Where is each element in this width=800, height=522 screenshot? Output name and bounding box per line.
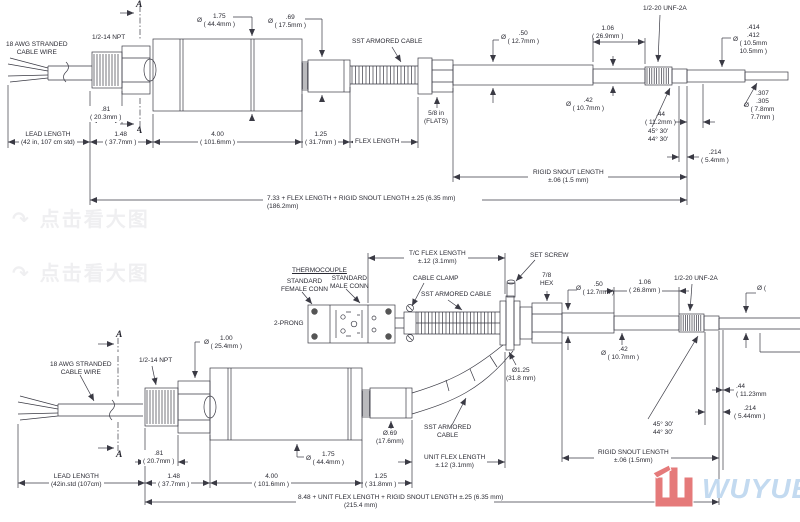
dim-dia-307-305: Ø.307.305( 7.8mm7.7mm ) bbox=[744, 90, 774, 123]
label-thermocouple: THERMOCOUPLE bbox=[292, 267, 347, 275]
label-cable-clamp: CABLE CLAMP bbox=[413, 275, 459, 283]
watermark-text: ↷ 点击看大图 bbox=[12, 257, 150, 286]
dim-unit-flex-length: UNIT FLEX LENGTH±.12 (3.1mm) bbox=[422, 454, 487, 470]
watermark-text: ↷ 点击看大图 bbox=[12, 203, 150, 232]
dim-dia-414-412: Ø.414.412( 10.5mm10.5mm ) bbox=[733, 24, 767, 57]
section-a-bottom-label-bottom: A bbox=[116, 450, 122, 460]
dim-dia-0-50-bottom: Ø.50( 12.7mm ) bbox=[576, 281, 614, 297]
label-sst-cable-top: SST ARMORED CABLE bbox=[352, 38, 422, 46]
dim-1-48-bottom: 1.48( 37.7mm ) bbox=[156, 473, 191, 489]
label-sst-cable-bottom-lower: SST ARMOREDCABLE bbox=[424, 424, 471, 440]
diameter-symbol: Ø bbox=[744, 102, 749, 110]
dim-0-81-top: .81( 20.3mm ) bbox=[88, 106, 123, 122]
dim-overall-top: 7.33 + FLEX LENGTH + RIGID SNOUT LENGTH … bbox=[267, 195, 455, 211]
diameter-symbol: Ø bbox=[566, 101, 571, 109]
dim-rigid-snout-top: RIGID SNOUT LENGTH±.06 (1.5 mm) bbox=[531, 169, 606, 185]
label-npt-top: 1/2-14 NPT bbox=[92, 34, 125, 42]
bottom-armored-cable bbox=[416, 312, 500, 334]
dim-angle-bottom: 45° 30'44° 30' bbox=[653, 421, 673, 437]
dim-lead-length-bottom: LEAD LENGTH(42in.std (107cm) bbox=[49, 473, 104, 489]
dim-dia-0-42-top: Ø.42( 10.7mm ) bbox=[566, 97, 604, 113]
dim-1-48-top: 1.48( 37.7mm ) bbox=[103, 131, 138, 147]
top-npt-fitting bbox=[92, 46, 156, 94]
dim-0-44-bottom: .44( 11.23mm bbox=[736, 383, 767, 399]
label-set-screw: SET SCREW bbox=[530, 252, 569, 260]
watermark-arrow-icon: ↷ bbox=[12, 207, 31, 231]
cable-clamp bbox=[404, 305, 416, 342]
watermark-arrow-icon: ↷ bbox=[12, 261, 31, 285]
label-awg-wire-bottom: 18 AWG STRANDEDCABLE WIRE bbox=[50, 361, 112, 377]
thermocouple-connector bbox=[308, 305, 404, 343]
wuyue-logo-text: WUYUE bbox=[702, 473, 800, 505]
label-unf-thread-top: 1/2-20 UNF-2A bbox=[643, 5, 687, 13]
diameter-symbol: Ø bbox=[501, 34, 506, 42]
dim-dia-0-50-top: Ø.50( 12.7mm ) bbox=[501, 30, 539, 46]
dim-dia-1-25: Ø1.25(31.8 mm) bbox=[506, 367, 536, 383]
diameter-symbol: Ø bbox=[733, 36, 738, 44]
diameter-symbol: Ø bbox=[306, 455, 311, 463]
dim-1-25-top: 1.25( 31.7mm ) bbox=[303, 131, 338, 147]
dim-dia-0-42-bottom: Ø.42( 10.7mm ) bbox=[601, 346, 639, 362]
label-awg-wire-top: 18 AWG STRANDEDCABLE WIRE bbox=[6, 41, 68, 57]
label-female-conn: STANDARDFEMALE CONN bbox=[281, 278, 328, 294]
top-lead-wires bbox=[8, 58, 92, 82]
label-2-prong: 2-PRONG bbox=[274, 320, 304, 328]
dim-tc-flex-length: T/C FLEX LENGTH±.12 (3.1mm) bbox=[407, 250, 468, 266]
diameter-symbol: Ø bbox=[197, 17, 202, 25]
dim-flex-length-top: FLEX LENGTH bbox=[353, 138, 401, 146]
label-flats-top: 5/8 in(FLATS) bbox=[424, 110, 448, 126]
dim-0-44-top: .44( 11.2mm ) bbox=[645, 111, 676, 127]
dim-1-06-top: 1.06( 26.9mm ) bbox=[592, 25, 623, 41]
section-a-top-label: A bbox=[136, 0, 142, 10]
dim-overall-bottom: 8.48 + UNIT FLEX LENGTH + RIGID SNOUT LE… bbox=[298, 494, 503, 510]
label-male-conn: STANDARDMALE CONN bbox=[330, 275, 369, 291]
watermark-label: 点击看大图 bbox=[40, 261, 150, 285]
dim-0-81-bottom: .81( 20.7mm ) bbox=[141, 450, 176, 466]
bottom-curved-cable bbox=[412, 345, 513, 414]
dim-dia-edge-partial: Ø ( bbox=[757, 285, 766, 293]
bottom-npt-fitting bbox=[145, 381, 216, 433]
dim-0-214-top: .214( 5.4mm ) bbox=[701, 149, 729, 165]
top-armored-cable bbox=[350, 66, 418, 84]
label-sst-cable-bottom-upper: SST ARMORED CABLE bbox=[421, 291, 491, 299]
dim-0-214-bottom: .214( 5.44mm ) bbox=[734, 405, 765, 421]
dim-dia-1-00: Ø1.00( 25.4mm ) bbox=[204, 335, 242, 351]
dim-dia-0-69-bottom: Ø.69(17.6mm) bbox=[376, 430, 404, 446]
label-hex-7-8: 7/8HEX bbox=[540, 272, 553, 288]
dim-angle-top: 45° 30'44° 30' bbox=[648, 128, 668, 144]
dim-4-00-top: 4.00( 101.6mm ) bbox=[198, 131, 237, 147]
dim-dia-0-69-top: Ø.69( 17.5mm ) bbox=[268, 14, 306, 30]
diameter-symbol: Ø bbox=[204, 339, 209, 347]
dim-1-25-bottom: 1.25( 31.8mm ) bbox=[363, 473, 398, 489]
diameter-symbol: Ø bbox=[601, 350, 606, 358]
bottom-section-a-marker bbox=[98, 338, 118, 452]
top-transmitter-body bbox=[153, 39, 350, 111]
dim-dia-1-75-bottom: Ø1.75( 44.4mm ) bbox=[306, 451, 344, 467]
wuyue-logo-icon bbox=[651, 463, 697, 511]
top-probe bbox=[418, 58, 788, 94]
section-a-top-label-bottom: A bbox=[116, 330, 122, 340]
dim-dia-1-75-top: Ø1.75( 44.4mm ) bbox=[197, 13, 235, 29]
wuyue-logo: WUYUE bbox=[651, 463, 800, 511]
diameter-symbol: Ø bbox=[268, 18, 273, 26]
diameter-symbol: Ø bbox=[576, 285, 581, 293]
dim-lead-length-top: LEAD LENGTH(42 in, 107 cm std) bbox=[19, 131, 77, 147]
dim-1-06-bottom: 1.06( 26.8mm ) bbox=[627, 279, 662, 295]
watermark-label: 点击看大图 bbox=[40, 207, 150, 231]
label-npt-bottom: 1/2-14 NPT bbox=[139, 357, 172, 365]
label-unf-thread-bottom: 1/2-20 UNF-2A bbox=[674, 275, 718, 283]
dim-4-00-bottom: 4.00( 101.6mm ) bbox=[252, 473, 291, 489]
bottom-lead-wires bbox=[18, 396, 143, 420]
technical-drawing-page: ↷ 点击看大图 ↷ 点击看大图 A A 18 AWG STRANDEDCABLE… bbox=[0, 0, 800, 522]
